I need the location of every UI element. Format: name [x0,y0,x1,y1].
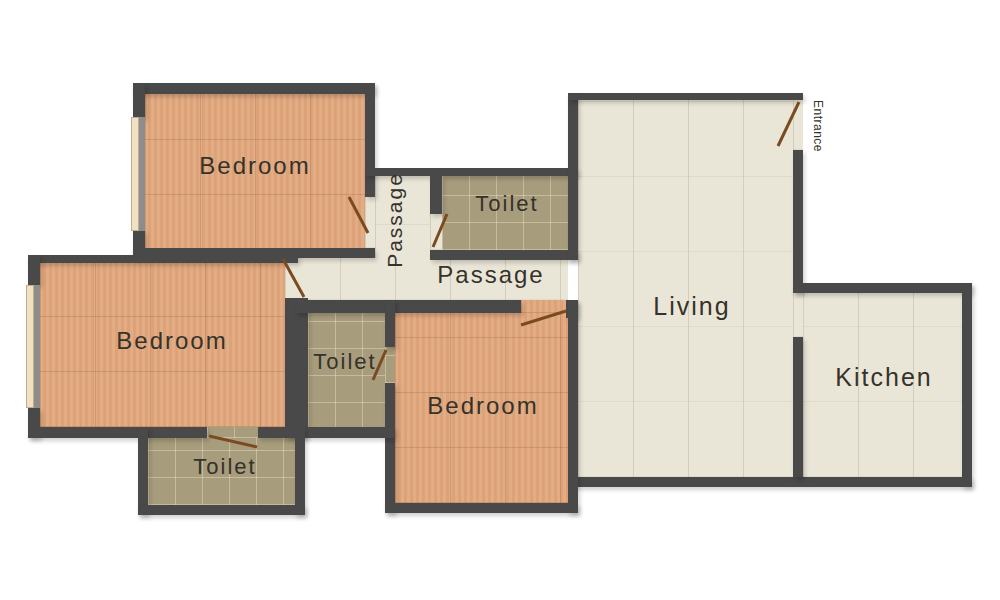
wall-kitchen-divider [793,337,803,477]
wall-bedroom3-right [568,300,578,513]
toilet1-door-opening [430,214,442,250]
living-floor [578,100,793,477]
wall-bedroom2-right [285,298,308,438]
bedroom1-door-opening [365,197,375,248]
entrance-door-opening [793,100,803,150]
bedroom1-window-frame [139,117,145,231]
bedroom3-label: Bedroom [427,392,538,420]
bedroom1-label: Bedroom [199,152,310,180]
toilet3-door-opening [207,427,258,438]
toilet2-door-opening [385,347,395,383]
toilet3-label: Toilet [193,454,256,480]
wall-bedroom2-bottom-left [28,427,207,438]
bedroom2-window [26,285,34,408]
passage-vertical-label: Passage [383,172,407,268]
wall-kitchen-right [962,283,972,487]
wall-toilet3-left [138,427,148,515]
wall-toilet2-bedroom3-top [295,300,521,313]
toilet1-label: Toilet [475,191,538,217]
wall-bedroom3-left-upper [385,300,395,347]
wall-toilet1-left-stub [430,176,442,214]
wall-bedroom2-top [28,255,298,263]
wall-living-top [568,93,803,100]
wall-bedroom3-left-lower [385,383,395,513]
wall-living-left [568,93,578,260]
wall-bedroom1-right [365,83,375,197]
wall-bedroom1-left-upper [133,83,145,118]
wall-living-kitchen-bottom [568,477,972,487]
wall-toilet1-bottom [430,250,578,260]
bedroom2-label: Bedroom [116,327,227,355]
wall-living-right [793,150,803,293]
wall-bedroom3-bottom [385,503,578,513]
kitchen-label: Kitchen [835,363,932,392]
wall-bedroom2-left-upper [28,255,40,285]
floor-plan: Bedroom Passage Toilet Passage Living En… [0,0,1000,600]
bedroom3-door-opening [521,300,566,313]
wall-toilet3-bottom [138,505,305,515]
wall-bedroom2-bottom-right [258,427,395,438]
kitchen-opening-floor [793,293,803,337]
bedroom1-window [131,117,139,231]
wall-toilet3-right [295,427,305,515]
living-label: Living [653,292,730,321]
wall-bedroom1-top [133,83,375,94]
entrance-label: Entrance [811,100,825,152]
toilet2-label: Toilet [313,349,376,375]
wall-kitchen-top [793,283,972,293]
bedroom2-window-frame [34,285,40,408]
passage-main-label: Passage [437,261,544,289]
